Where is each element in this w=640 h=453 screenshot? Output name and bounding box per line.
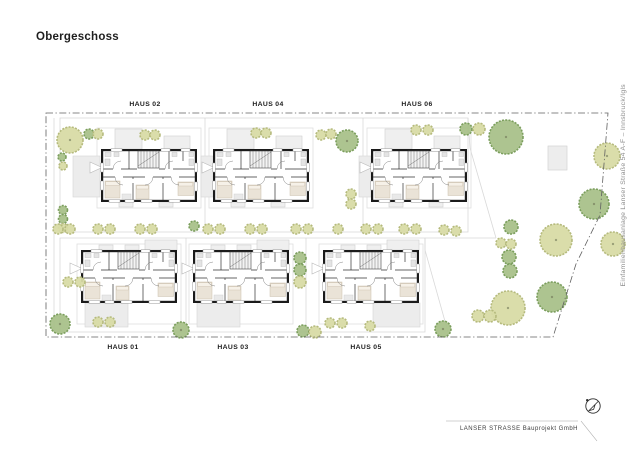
house-label-haus-04: HAUS 04 [252, 101, 283, 108]
shrub [93, 317, 103, 327]
shrub [251, 128, 261, 138]
house-group-haus-03 [182, 240, 293, 327]
shrub [297, 325, 309, 337]
shrub [105, 224, 115, 234]
tree [489, 120, 523, 154]
house-group-haus-06 [359, 128, 471, 208]
tree [50, 314, 70, 334]
shrub [291, 224, 301, 234]
shrub [337, 318, 347, 328]
house-group-haus-01 [70, 240, 181, 327]
shrub [411, 125, 421, 135]
garden-shed [548, 146, 567, 170]
shrub [325, 318, 335, 328]
shrub [53, 224, 63, 234]
shrub [346, 189, 356, 199]
page-title: Obergeschoss [36, 31, 119, 43]
shrub [399, 224, 409, 234]
house-group-haus-02 [73, 128, 201, 208]
shrub [294, 264, 306, 276]
shrub [59, 215, 68, 224]
tree [579, 189, 609, 219]
shrub [309, 326, 321, 338]
house-group-haus-04 [201, 128, 313, 208]
house-label-haus-02: HAUS 02 [129, 101, 160, 108]
shrub [140, 130, 150, 140]
shrub [203, 224, 213, 234]
shrub [365, 321, 375, 331]
house-label-haus-06: HAUS 06 [401, 101, 432, 108]
shrub [147, 224, 157, 234]
side-note: Einfamilienhausanlage Lanser Straße 54 A… [620, 84, 627, 286]
shrub [63, 277, 73, 287]
site-plan-drawing [0, 0, 640, 453]
shrub [257, 224, 267, 234]
shrub [439, 225, 449, 235]
shrub [451, 226, 461, 236]
shrub [75, 277, 85, 287]
footer-credit: LANSER STRASSE Bauprojekt GmbH [460, 426, 578, 432]
shrub [84, 129, 94, 139]
shrub [460, 123, 472, 135]
shrub [58, 153, 66, 161]
tree [491, 291, 525, 325]
shrub [59, 206, 68, 215]
shrub [294, 276, 306, 288]
shrub [473, 123, 485, 135]
tree [435, 321, 451, 337]
shrub [93, 224, 103, 234]
shrub [316, 130, 326, 140]
house-group-haus-05 [312, 240, 423, 327]
house-label-haus-05: HAUS 05 [350, 344, 381, 351]
shrub [150, 130, 160, 140]
shrub [502, 250, 516, 264]
shrub [245, 224, 255, 234]
tree [173, 322, 189, 338]
shrub [135, 224, 145, 234]
shrub [189, 221, 199, 231]
shrub [423, 125, 433, 135]
plan-sheet: Obergeschoss HAUS 02HAUS 04HAUS 06HAUS 0… [0, 0, 640, 453]
shrub [326, 129, 336, 139]
shrub [411, 224, 421, 234]
shrub [346, 199, 356, 209]
shrub [65, 224, 75, 234]
shrub [93, 129, 103, 139]
tree [57, 127, 83, 153]
shrub [503, 264, 517, 278]
shrub [504, 220, 518, 234]
shrub [261, 128, 271, 138]
shrub [303, 224, 313, 234]
shrub [215, 224, 225, 234]
shrub [373, 224, 383, 234]
shrub [59, 162, 67, 170]
house-label-haus-01: HAUS 01 [107, 344, 138, 351]
north-arrow-icon [586, 399, 600, 413]
shrub [361, 224, 371, 234]
shrub [294, 252, 306, 264]
tree [540, 224, 572, 256]
house-label-haus-03: HAUS 03 [217, 344, 248, 351]
shrub [333, 224, 343, 234]
tree [336, 130, 358, 152]
tree [594, 143, 620, 169]
shrub [506, 239, 516, 249]
shrub [472, 310, 484, 322]
shrub [496, 238, 506, 248]
shrub [105, 317, 115, 327]
shrub [484, 310, 496, 322]
